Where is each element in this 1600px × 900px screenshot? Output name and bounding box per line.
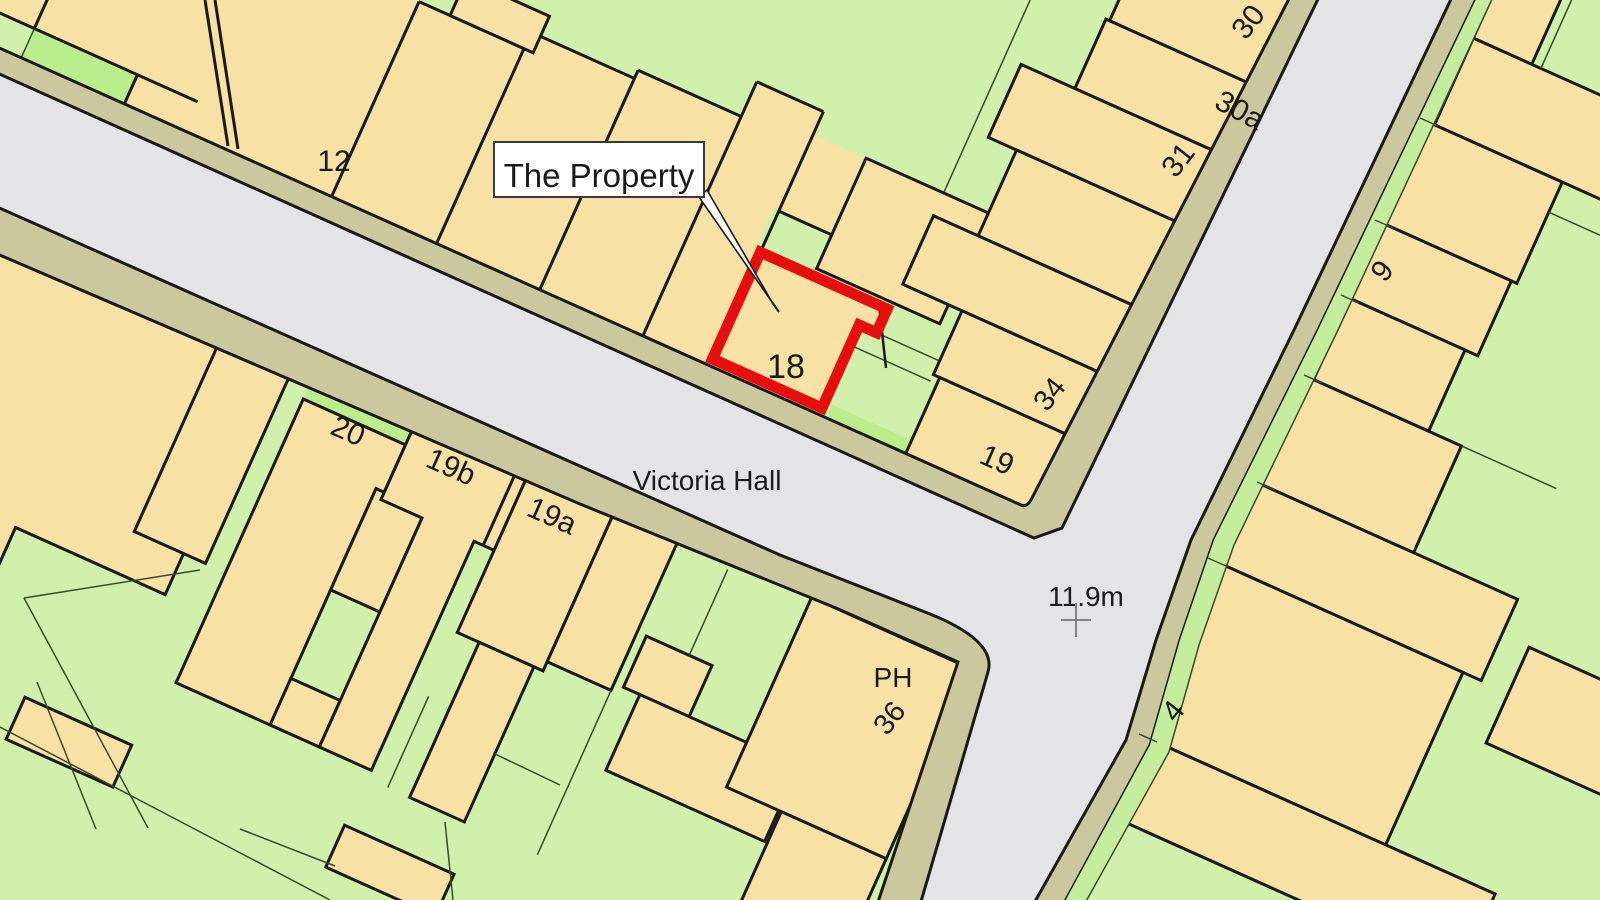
svg-text:12: 12 xyxy=(317,145,350,178)
svg-text:18: 18 xyxy=(767,348,805,386)
svg-text:Victoria Hall: Victoria Hall xyxy=(633,465,782,496)
svg-text:PH: PH xyxy=(874,662,913,693)
svg-text:The Property: The Property xyxy=(504,157,695,194)
svg-text:11.9m: 11.9m xyxy=(1048,581,1124,612)
